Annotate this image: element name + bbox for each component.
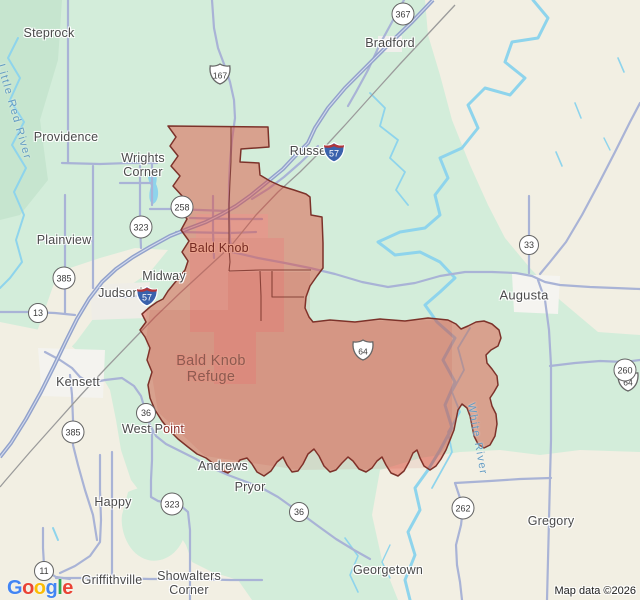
label-text: Bald Knob (189, 241, 248, 255)
route-shield-circle-36: 36 (136, 403, 156, 423)
route-shield-us-167: 167 (0, 63, 540, 86)
logo-letter: e (62, 577, 73, 599)
route-shield-interstate-57: 57 (0, 285, 467, 308)
route-shield-circle-323: 323 (161, 493, 184, 516)
label-text: oint (163, 422, 184, 436)
route-number: 57 (14, 141, 640, 164)
route-number: 260 (617, 365, 632, 375)
label-text: Refuge (176, 369, 246, 385)
route-number: 323 (164, 499, 179, 509)
label-text: Happy (94, 495, 131, 509)
route-number: 64 (43, 339, 640, 362)
place-label-andrews: Andrews (198, 459, 248, 473)
route-number: 36 (141, 408, 151, 418)
label-text: Gregory (528, 514, 575, 528)
route-number: 11 (39, 566, 48, 576)
label-text: Pryor (235, 480, 266, 494)
route-number: 64 (308, 370, 640, 393)
route-shield-circle-260: 260 (614, 359, 637, 382)
place-label-plainview: Plainview (37, 233, 92, 247)
logo-letter: o (22, 577, 34, 599)
place-label-bald-knob: Bald Knob (189, 241, 248, 255)
place-label-west-point: West Point (122, 422, 184, 436)
label-text: Griffithville (82, 573, 143, 587)
label-text: Plainview (37, 233, 92, 247)
label-text: Augusta (499, 289, 548, 304)
route-shield-circle-323: 323 (130, 216, 153, 239)
route-shield-circle-36: 36 (289, 502, 309, 522)
place-label-augusta: Augusta (499, 289, 548, 304)
route-number: 323 (133, 222, 148, 232)
place-label-midway: Midway (142, 269, 186, 283)
route-shield-circle-33: 33 (519, 235, 539, 255)
label-text: Midway (142, 269, 186, 283)
logo-letter: g (46, 577, 58, 599)
route-shield-circle-385: 385 (62, 421, 85, 444)
route-shield-circle-13: 13 (28, 303, 48, 323)
label-text: Kensett (56, 375, 100, 389)
label-text: Corner (121, 165, 165, 179)
route-number: 385 (65, 427, 80, 437)
logo-letter: G (7, 577, 22, 599)
place-label-griffithville: Griffithville (82, 573, 143, 587)
logo-letter: o (34, 577, 46, 599)
label-text: Showalters (157, 569, 221, 583)
place-label-kensett: Kensett (56, 375, 100, 389)
route-shield-circle-385: 385 (53, 267, 76, 290)
route-number: 167 (0, 63, 540, 86)
route-number: 13 (33, 308, 43, 318)
route-shield-us-64: 64 (43, 339, 640, 362)
route-number: 258 (174, 202, 189, 212)
label-text: Corner (157, 583, 221, 597)
google-logo[interactable]: Google (7, 577, 73, 600)
map-canvas[interactable]: SteprockBradfordProvidenceWrightsCornerR… (0, 0, 640, 600)
label-text: West P (122, 422, 163, 436)
place-label-georgetown: Georgetown (353, 563, 423, 577)
route-number: 33 (524, 240, 534, 250)
place-label-happy: Happy (94, 495, 131, 509)
label-text: Andrews (198, 459, 248, 473)
route-number: 57 (0, 285, 467, 308)
route-shield-circle-367: 367 (392, 3, 415, 26)
route-number: 262 (455, 503, 470, 513)
route-shield-circle-258: 258 (171, 196, 194, 219)
route-number: 367 (395, 9, 410, 19)
route-shield-us-64: 64 (308, 370, 640, 393)
route-shield-interstate-57: 57 (14, 141, 640, 164)
place-label-pryor: Pryor (235, 480, 266, 494)
place-label-showalters-corner: ShowaltersCorner (157, 569, 221, 597)
route-number: 36 (294, 507, 304, 517)
place-label-steprock: Steprock (24, 26, 75, 40)
map-attribution: Map data ©2026 (555, 585, 637, 597)
place-label-gregory: Gregory (528, 514, 575, 528)
label-text: Steprock (24, 26, 75, 40)
label-text: Bradford (365, 36, 415, 50)
label-text: Georgetown (353, 563, 423, 577)
route-shield-circle-262: 262 (452, 497, 475, 520)
place-label-bradford: Bradford (365, 36, 415, 50)
route-number: 385 (56, 273, 71, 283)
